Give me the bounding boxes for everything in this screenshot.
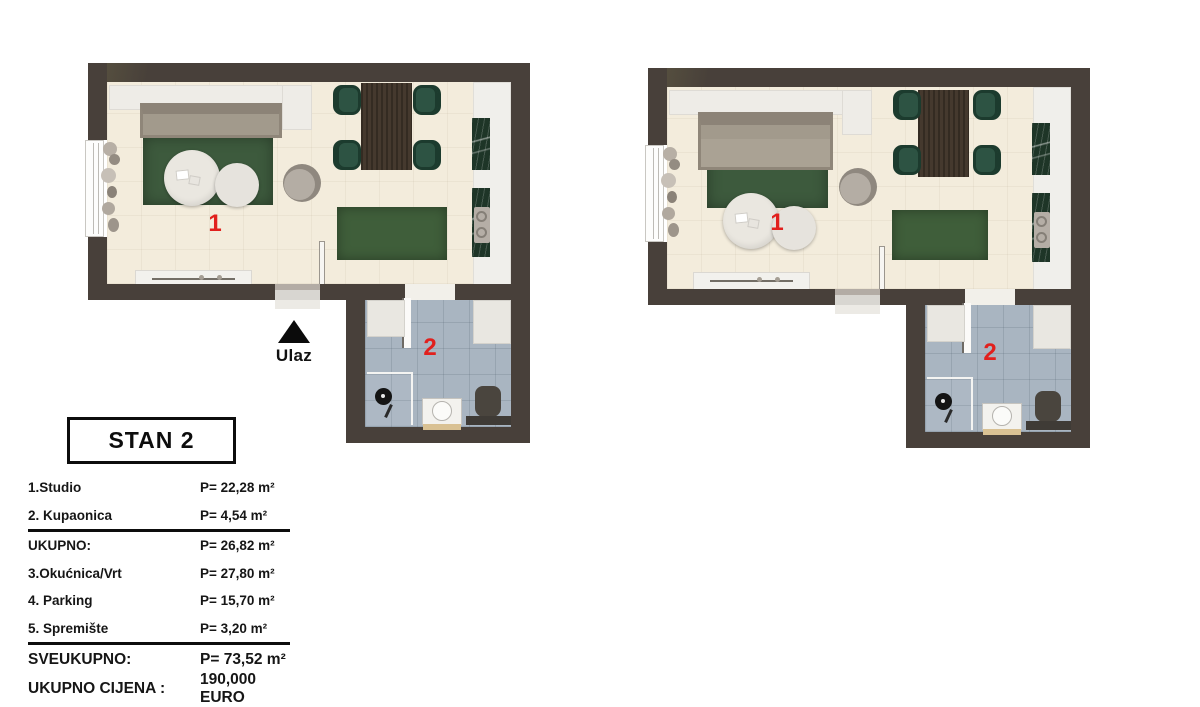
dining-chair: [893, 90, 921, 120]
bathroom-cabinet: [1033, 305, 1071, 349]
dining-chair: [413, 140, 441, 170]
burner: [1036, 216, 1047, 227]
entrance-step: [835, 305, 880, 314]
center-rug: [337, 207, 447, 260]
sink-vanity: [983, 429, 1021, 435]
magazine: [188, 175, 200, 186]
plant-blob: [669, 159, 680, 170]
bathroom-sink: [982, 403, 1022, 430]
dining-table: [361, 83, 412, 170]
window-glass-line: [658, 148, 659, 239]
center-rug: [892, 210, 988, 260]
toilet-shelf: [1026, 421, 1071, 430]
dining-chair: [413, 85, 441, 115]
magazine: [176, 169, 190, 180]
summary-row-price: UKUPNO CIJENA : 190,000 EURO: [28, 674, 290, 703]
summary-row-storage: 5. Spremište P= 3,20 m²: [28, 615, 290, 643]
dining-chair: [973, 90, 1001, 120]
wall-right: [511, 63, 530, 443]
plant-blob: [668, 223, 679, 237]
toilet-shelf: [466, 416, 511, 425]
summary-row-parking: 4. Parking P= 15,70 m²: [28, 587, 290, 615]
area-summary-table: 1.Studio P= 22,28 m² 2. Kupaonica P= 4,5…: [28, 474, 290, 703]
magazine: [747, 218, 759, 229]
armchair: [283, 164, 321, 202]
row-label: SVEUKUPNO:: [28, 651, 200, 669]
plant-blob: [102, 202, 115, 215]
sink-vanity: [423, 424, 461, 430]
coffee-table-large: [164, 150, 220, 206]
row-label: UKUPNO:: [28, 538, 200, 553]
shower: [367, 372, 413, 425]
dining-chair: [333, 140, 361, 170]
bathroom-cabinet: [367, 300, 405, 337]
sofa-bed: [698, 112, 833, 170]
wall-left: [648, 68, 667, 145]
row-label: UKUPNO CIJENA :: [28, 680, 200, 698]
row-label: 3.Okućnica/Vrt: [28, 566, 200, 581]
entrance-label: Ulaz: [262, 346, 326, 366]
window-glass-line: [93, 143, 94, 234]
entrance-marker: Ulaz: [262, 320, 326, 366]
entrance-threshold: [835, 289, 880, 305]
bathroom-wall: [346, 284, 365, 443]
bathroom-wall: [906, 289, 925, 448]
plant-blob: [109, 154, 120, 165]
row-value: P= 4,54 m²: [200, 508, 290, 523]
shower-stem: [944, 409, 953, 423]
row-label: 2. Kupaonica: [28, 508, 200, 523]
bathroom-door-opening: [405, 284, 455, 300]
summary-row-total: SVEUKUPNO: P= 73,52 m²: [28, 642, 290, 674]
burner: [476, 211, 487, 222]
wall-top: [648, 68, 1090, 87]
plant-blob: [661, 173, 676, 188]
row-value: P= 26,82 m²: [200, 538, 290, 553]
wardrobe-column: [282, 85, 312, 130]
shower-stem: [384, 404, 393, 418]
room-number-bathroom: 2: [414, 336, 446, 360]
toilet: [1035, 391, 1061, 422]
row-value: P= 3,20 m²: [200, 621, 290, 636]
sideboard-item: [217, 275, 222, 280]
entrance-arrow-icon: [278, 320, 310, 343]
room-number-bathroom: 2: [974, 341, 1006, 365]
window-glass-line: [653, 148, 654, 239]
plant-blob: [108, 218, 119, 232]
dining-chair: [893, 145, 921, 175]
room-number-studio: 1: [761, 211, 793, 235]
bathroom-cabinet: [473, 300, 511, 344]
sideboard: [693, 272, 810, 290]
summary-row-subtotal: UKUPNO: P= 26,82 m²: [28, 529, 290, 560]
wall-bottom: [648, 289, 835, 305]
bathroom-sink: [422, 398, 462, 425]
toilet: [475, 386, 501, 417]
cooktop: [1034, 212, 1050, 248]
dining-table: [918, 90, 969, 177]
bathroom-cabinet: [927, 305, 965, 342]
summary-row-studio: 1.Studio P= 22,28 m²: [28, 474, 290, 502]
entry-door-leaf: [319, 241, 325, 285]
entrance-threshold: [275, 284, 320, 300]
plants: [101, 142, 123, 242]
wardrobe-column: [842, 90, 872, 135]
burner: [476, 227, 487, 238]
dining-chair: [973, 145, 1001, 175]
plant-blob: [107, 186, 117, 198]
armchair: [839, 168, 877, 206]
plant-blob: [101, 168, 116, 183]
entrance-step: [275, 300, 320, 309]
floorplan-left: 1 2 Ulaz: [68, 42, 538, 452]
row-label: 5. Spremište: [28, 621, 200, 636]
magazine: [735, 212, 749, 223]
shower-head-dot: [381, 394, 385, 398]
burner: [1036, 232, 1047, 243]
shower: [927, 377, 973, 430]
wall-top: [88, 63, 530, 82]
armchair-seat: [284, 169, 315, 200]
dining-chair: [333, 85, 361, 115]
bathroom-door-opening: [965, 289, 1015, 305]
sink-bowl: [992, 406, 1012, 426]
row-value: P= 73,52 m²: [200, 651, 290, 669]
sofa: [140, 103, 282, 138]
summary-row-bathroom: 2. Kupaonica P= 4,54 m²: [28, 502, 290, 530]
row-value: 190,000 EURO: [200, 671, 290, 707]
row-value: P= 22,28 m²: [200, 480, 290, 495]
row-value: P= 15,70 m²: [200, 593, 290, 608]
row-value: P= 27,80 m²: [200, 566, 290, 581]
summary-row-garden: 3.Okućnica/Vrt P= 27,80 m²: [28, 560, 290, 588]
wall-bottom: [88, 284, 275, 300]
sideboard-item: [775, 277, 780, 282]
kitchen-worktop: [1032, 123, 1050, 175]
plants: [661, 147, 683, 247]
floorplan-right: 1 2: [628, 47, 1098, 457]
plan-title: STAN 2: [108, 427, 194, 454]
plan-title-box: STAN 2: [67, 417, 236, 464]
row-label: 4. Parking: [28, 593, 200, 608]
shower-head-dot: [941, 399, 945, 403]
room-number-studio: 1: [199, 212, 231, 236]
wall-right: [1071, 68, 1090, 448]
entry-door-leaf: [879, 246, 885, 290]
row-label: 1.Studio: [28, 480, 200, 495]
page: { "title": "STAN 2", "plans": [ { "name"…: [0, 0, 1200, 698]
sink-bowl: [432, 401, 452, 421]
coffee-table-small: [215, 163, 259, 207]
plant-blob: [667, 191, 677, 203]
sideboard-item: [152, 278, 235, 280]
cooktop: [474, 207, 490, 243]
armchair-seat: [840, 173, 871, 204]
window-glass-line: [98, 143, 99, 234]
wall-left: [88, 63, 107, 140]
kitchen-worktop: [472, 118, 490, 170]
sideboard-item: [710, 280, 793, 282]
plant-blob: [662, 207, 675, 220]
